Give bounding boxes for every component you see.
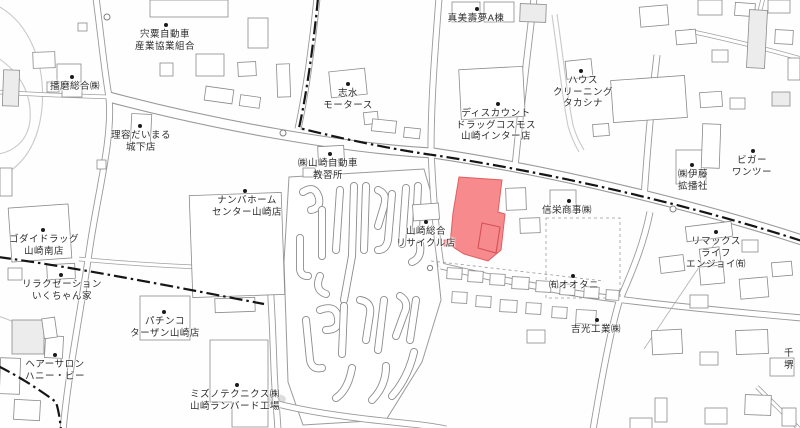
base-map — [0, 0, 800, 428]
highlight-parcel[interactable] — [444, 177, 505, 261]
map-canvas[interactable]: 宍粟自動車産業協業組合播磨総合㈱真美壽夢A棟志水モータースハウスクリーニングタカ… — [0, 0, 800, 428]
